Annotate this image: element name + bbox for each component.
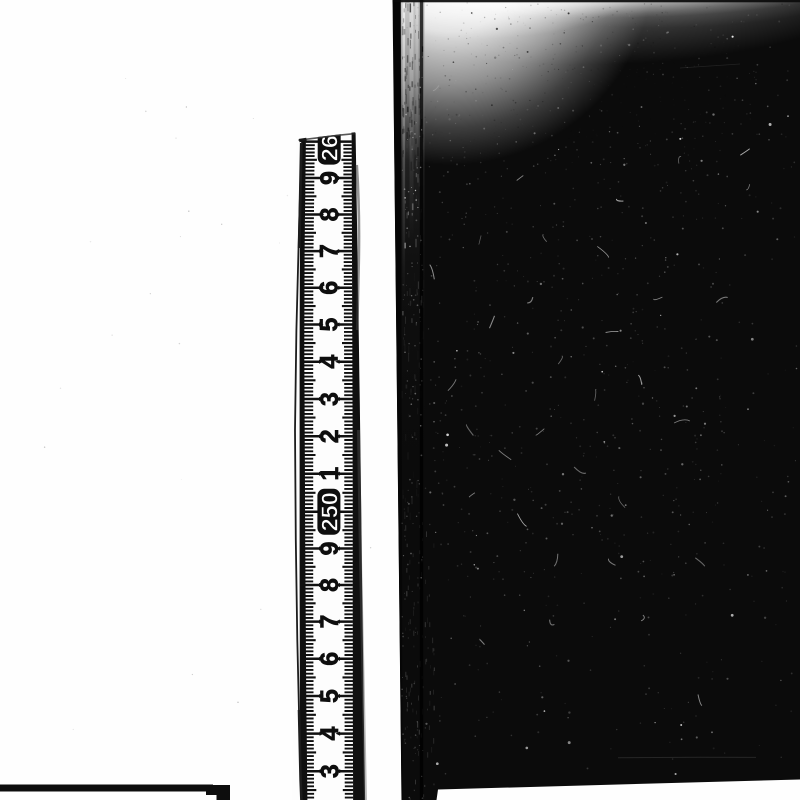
svg-text:250: 250 [316,492,342,531]
svg-text:7: 7 [316,615,344,629]
svg-text:4: 4 [316,727,344,741]
svg-text:6: 6 [316,281,344,295]
svg-text:8: 8 [316,207,344,221]
svg-text:3: 3 [316,392,344,406]
svg-text:5: 5 [316,689,344,703]
svg-text:3: 3 [316,764,344,778]
svg-text:8: 8 [316,578,344,592]
svg-text:6: 6 [316,652,344,666]
svg-text:9: 9 [316,542,344,556]
svg-text:7: 7 [316,244,344,258]
svg-text:4: 4 [316,355,344,369]
svg-text:5: 5 [316,317,344,331]
svg-text:9: 9 [316,171,344,185]
svg-text:2: 2 [316,429,344,443]
svg-text:1: 1 [316,467,344,481]
